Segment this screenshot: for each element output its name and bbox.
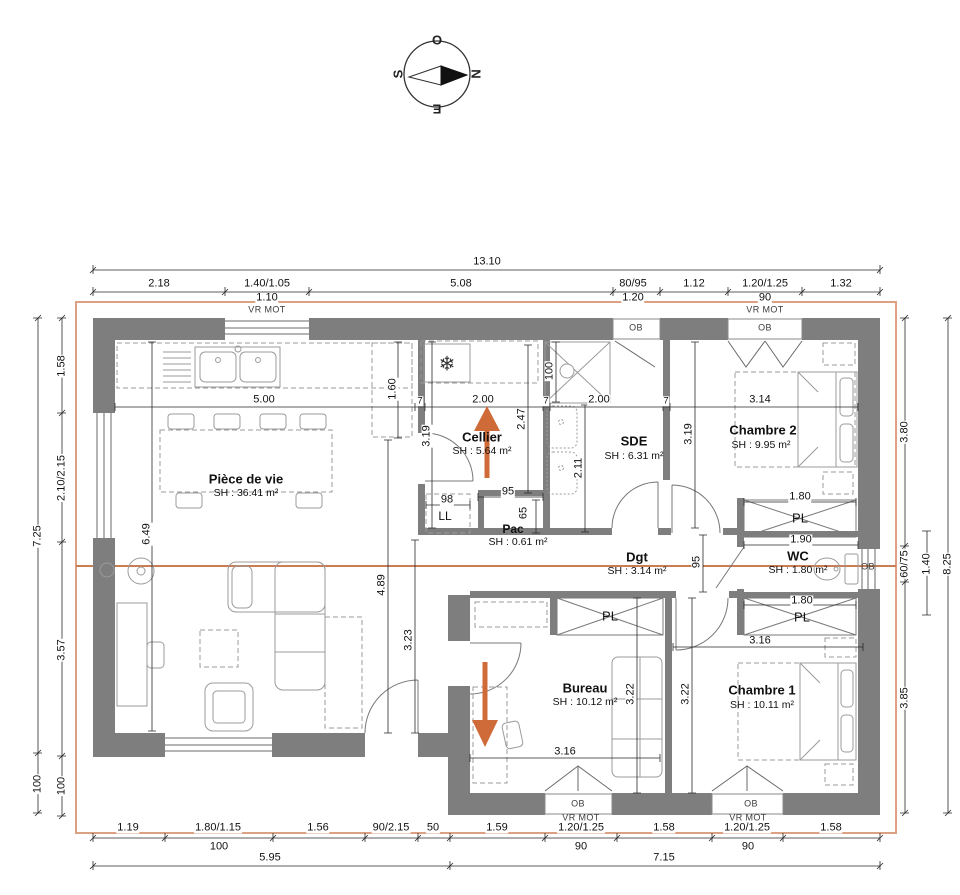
dim-chambre1-closet: 1.80 — [790, 596, 813, 607]
dim-top-s5: 1.12 — [682, 279, 705, 290]
dim-partition3: 7 — [662, 396, 669, 406]
dim-bottom-opening2: 90 — [574, 842, 588, 853]
dim-shower: 100 — [545, 361, 556, 381]
floor-plan-canvas: O N S E 13.10 2.18 1.40/1.05 5.08 80/95 … — [0, 0, 960, 895]
dim-partition1: 7 — [416, 396, 423, 406]
compass-icon — [404, 41, 470, 107]
dim-bottom-s8: 1.58 — [652, 823, 675, 834]
dim-left-s2: 2.10/2.15 — [57, 454, 68, 502]
dim-bottom-opening1: 100 — [209, 842, 229, 853]
dim-bottom-s6: 1.59 — [485, 823, 508, 834]
dim-left-total2: 100 — [33, 774, 44, 794]
dim-bottom-s7: 1.20/1.25 — [557, 823, 605, 834]
window-tag-ob-bottom1: OB — [570, 800, 586, 809]
dim-left-s1: 1.58 — [57, 354, 68, 377]
closet-label-chambre1: PL — [793, 611, 811, 624]
window-tag-ob-top1: OB — [628, 324, 644, 333]
dim-kitchen-width: 5.00 — [252, 395, 275, 406]
dim-bottom-s2: 1.80/1.15 — [194, 823, 242, 834]
dim-washer-width: 98 — [440, 495, 454, 506]
dim-chambre2-width: 3.14 — [748, 395, 771, 406]
dim-cellier-height2: 2.47 — [517, 407, 528, 430]
dim-living-height: 6.49 — [142, 522, 153, 545]
dim-top-s3: 5.08 — [449, 279, 472, 290]
dim-bottom-s1: 1.19 — [116, 823, 139, 834]
room-area-chambre1: SH : 10.11 m² — [729, 700, 795, 711]
window-tag-ob-wc: OB — [860, 563, 876, 572]
room-name-dgt: Dgt — [625, 551, 649, 564]
dim-right-window: 1.40 — [922, 552, 933, 575]
room-area-cellier: SH : 5.64 m² — [452, 446, 513, 457]
compass-south-label: S — [391, 70, 406, 79]
closet-label-dgt: PL — [601, 610, 619, 623]
dim-left-s3: 3.57 — [57, 638, 68, 661]
dim-bottom-s9: 1.20/1.25 — [723, 823, 771, 834]
room-area-dgt: SH : 3.14 m² — [607, 566, 668, 577]
dim-bottom-total1: 5.95 — [258, 853, 281, 864]
dim-top-s6: 1.20/1.25 — [741, 279, 789, 290]
sde-sinks — [547, 406, 577, 494]
dim-top-s7: 1.32 — [829, 279, 852, 290]
dim-bottom-s10: 1.58 — [819, 823, 842, 834]
room-name-piece-de-vie: Pièce de vie — [208, 473, 284, 486]
dim-chambre1-height: 3.22 — [681, 682, 692, 705]
dim-right-s3: 3.85 — [900, 686, 911, 709]
window-tag-vrmot-top1: VR MOT — [247, 306, 286, 315]
dim-right-s2: 60/75 — [900, 549, 911, 579]
room-name-chambre1: Chambre 1 — [727, 684, 796, 697]
room-name-pac: Pac — [501, 523, 524, 535]
window-tag-vrmot-bottom1: VR MOT — [561, 814, 600, 823]
compass-east-label: E — [433, 102, 442, 117]
dim-right-s1: 3.80 — [900, 420, 911, 443]
room-area-wc: SH : 1.80 m² — [768, 565, 829, 576]
dim-chambre2-closet: 1.80 — [788, 492, 811, 503]
dim-partition2: 7 — [542, 396, 549, 406]
dim-sde-width: 2.00 — [587, 395, 610, 406]
entrance-arrows — [472, 406, 500, 747]
room-name-wc: WC — [786, 550, 810, 563]
dim-bottom-opening3: 90 — [741, 842, 755, 853]
room-name-bureau: Bureau — [562, 682, 609, 695]
compass-west-label: O — [432, 33, 442, 48]
room-name-cellier: Cellier — [461, 431, 503, 444]
dim-counter-depth: 1.60 — [388, 377, 399, 400]
dim-left-total1: 7.25 — [33, 524, 44, 547]
freezer-snowflake-icon: ❄ — [439, 352, 456, 377]
room-area-pac: SH : 0.61 m² — [488, 537, 549, 548]
compass-north-label: N — [469, 69, 484, 78]
dim-wc-width: 1.90 — [789, 535, 812, 546]
dim-bottom-s3: 1.56 — [306, 823, 329, 834]
dim-bottom-total2: 7.15 — [652, 853, 675, 864]
dim-top-opening2: 1.20 — [621, 293, 644, 304]
dim-bureau-width: 3.16 — [553, 747, 576, 758]
dim-top-s2: 1.40/1.05 — [243, 279, 291, 290]
closet-label-chambre2: PL — [791, 512, 809, 525]
dim-cellier-height: 3.19 — [422, 424, 433, 447]
dim-chambre2-height: 3.19 — [684, 422, 695, 445]
window-tag-ob-top2: OB — [757, 324, 773, 333]
room-area-bureau: SH : 10.12 m² — [552, 697, 619, 708]
dim-sink-wall: 2.11 — [574, 457, 585, 480]
dim-top-opening3: 90 — [758, 293, 772, 304]
dim-living-height3: 3.23 — [404, 628, 415, 651]
window-tag-vrmot-top2: VR MOT — [745, 306, 784, 315]
room-area-chambre2: SH : 9.95 m² — [731, 440, 792, 451]
dim-bureau-height: 3.22 — [626, 682, 637, 705]
room-name-sde: SDE — [620, 435, 649, 448]
dim-top-total: 13.10 — [472, 257, 502, 268]
dim-right-total: 8.25 — [943, 552, 954, 575]
room-name-chambre2: Chambre 2 — [728, 424, 797, 437]
dim-cellier-width: 2.00 — [471, 395, 494, 406]
dim-pac-height: 65 — [519, 506, 530, 520]
dim-dgt-width: 95 — [692, 555, 703, 569]
dim-bottom-s5: 50 — [426, 823, 440, 834]
dim-top-s1: 2.18 — [147, 279, 170, 290]
dim-bottom-s4: 90/2.15 — [372, 823, 411, 834]
dim-chambre1-width: 3.16 — [748, 636, 771, 647]
dim-living-height2: 4.89 — [377, 573, 388, 596]
dim-pac-width: 95 — [501, 487, 515, 498]
room-area-piece-de-vie: SH : 36.41 m² — [213, 488, 280, 499]
dim-top-opening1: 1.10 — [255, 293, 278, 304]
dim-left-s4: 100 — [57, 776, 68, 796]
dim-top-s4: 80/95 — [618, 279, 648, 290]
window-tag-ob-bottom2: OB — [743, 800, 759, 809]
room-area-sde: SH : 6.31 m² — [604, 451, 665, 462]
washer-label: LL — [437, 510, 452, 522]
window-tag-vrmot-bottom2: VR MOT — [728, 814, 767, 823]
